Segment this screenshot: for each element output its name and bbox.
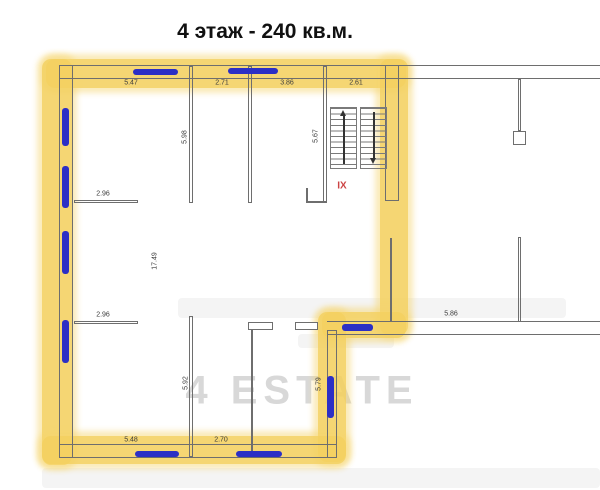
dim-label-567: 5.67 [313, 129, 320, 143]
stairs-down-arrow-icon [373, 112, 375, 158]
dim-label-296-upper: 2.96 [96, 191, 110, 198]
dim-label-592: 5.92 [183, 376, 190, 390]
partition-stub-upper [74, 200, 138, 203]
stairs-down-arrowhead-icon [370, 158, 376, 164]
partition-v1 [189, 66, 193, 203]
wall-bottom [59, 444, 337, 458]
column-box [513, 131, 526, 145]
floorplan-canvas: 4 этаж - 240 кв.м. 4 ESTATE IX [0, 0, 600, 490]
watermark-text: 4 ESTATE [185, 369, 418, 414]
window-marker [62, 166, 69, 208]
dim-label-598: 5.98 [182, 130, 189, 144]
wall-column-upper [518, 79, 521, 131]
partition-stairwell-left [323, 66, 327, 203]
dim-label-top-1: 5.47 [124, 80, 138, 87]
stairs-up-arrowhead-icon [340, 110, 346, 116]
dim-label-586: 5.86 [444, 311, 458, 318]
door-lintel-1 [248, 322, 273, 330]
wall-top-right-section [399, 65, 600, 79]
window-marker [327, 376, 334, 418]
door-lintel-2 [295, 322, 318, 330]
dim-label-296-lower: 2.96 [96, 312, 110, 319]
dim-label-1749: 17.49 [152, 252, 159, 270]
wall-bottom-right-section [399, 321, 600, 335]
wall-column-lower [518, 237, 521, 322]
partition-v2 [248, 66, 252, 203]
window-marker [133, 69, 178, 75]
window-marker [135, 451, 179, 457]
partition-hook-h [306, 201, 327, 203]
stairwell-label: IX [337, 181, 346, 192]
window-marker [228, 68, 278, 74]
wall-right-upper [385, 65, 399, 201]
floor-title: 4 этаж - 240 кв.м. [177, 20, 353, 44]
dim-label-top-4: 2.61 [349, 80, 363, 87]
dim-label-579: 5.79 [316, 377, 323, 391]
watermark-band [42, 468, 600, 488]
window-marker [62, 108, 69, 146]
partition-v4 [189, 316, 193, 457]
window-marker [62, 320, 69, 363]
window-marker [236, 451, 282, 457]
partition-hook-v [306, 188, 308, 203]
window-marker [62, 231, 69, 274]
partition-v5 [251, 330, 253, 457]
dim-label-548: 5.48 [124, 437, 138, 444]
stairs-up-arrow-icon [343, 116, 345, 164]
partition-stub-lower [74, 321, 138, 324]
wall-right-lower [390, 238, 392, 322]
dim-label-top-3: 3.86 [280, 80, 294, 87]
window-marker [342, 324, 373, 331]
dim-label-top-2: 2.71 [215, 80, 229, 87]
dim-label-270: 2.70 [214, 437, 228, 444]
